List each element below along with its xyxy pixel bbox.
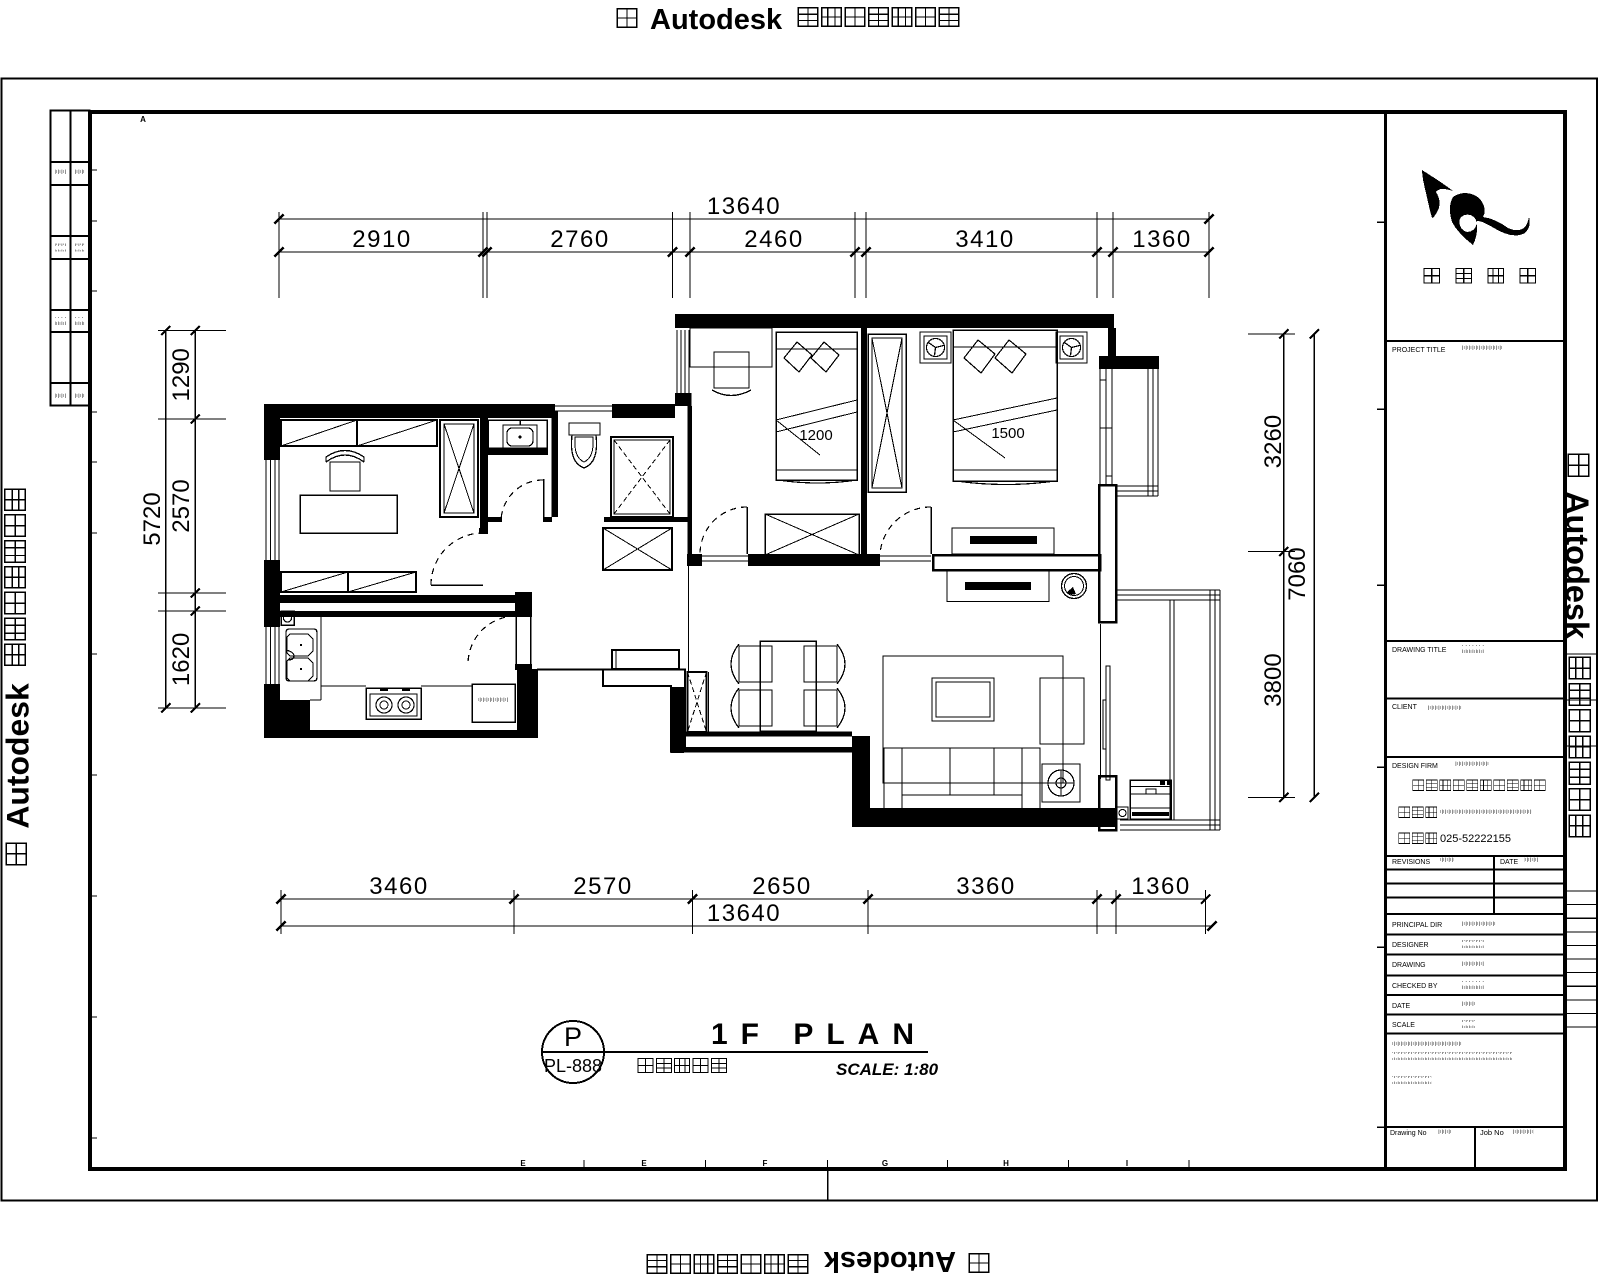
svg-text:025-52222155: 025-52222155 xyxy=(1440,833,1511,845)
svg-text:DATE: DATE xyxy=(1500,859,1518,866)
svg-text:A: A xyxy=(140,115,146,124)
svg-text:G: G xyxy=(882,1159,888,1168)
svg-text:1F PLAN: 1F PLAN xyxy=(711,1018,927,1051)
svg-text:Job No: Job No xyxy=(1480,1128,1504,1137)
svg-text:E: E xyxy=(520,1159,526,1168)
svg-text:E: E xyxy=(641,1159,647,1168)
svg-text:2570: 2570 xyxy=(168,479,195,532)
svg-text:3360: 3360 xyxy=(956,873,1015,900)
svg-text:PRINCIPAL DIR: PRINCIPAL DIR xyxy=(1392,922,1442,929)
svg-text:2760: 2760 xyxy=(550,226,609,253)
svg-text:5720: 5720 xyxy=(139,492,166,545)
svg-text:Drawing No: Drawing No xyxy=(1390,1130,1427,1137)
svg-text:CLIENT: CLIENT xyxy=(1392,704,1418,711)
svg-text:H: H xyxy=(1003,1159,1009,1168)
svg-text:1290: 1290 xyxy=(168,348,195,401)
svg-text:F: F xyxy=(763,1159,768,1168)
svg-text:7060: 7060 xyxy=(1284,547,1311,600)
svg-text:SCALE: 1:80: SCALE: 1:80 xyxy=(836,1060,939,1079)
svg-text:1500: 1500 xyxy=(991,425,1024,442)
svg-text:2910: 2910 xyxy=(352,226,411,253)
svg-text:SCALE: SCALE xyxy=(1392,1022,1415,1029)
svg-text:P: P xyxy=(564,1022,582,1052)
svg-text:2570: 2570 xyxy=(573,873,632,900)
svg-text:Autodesk: Autodesk xyxy=(650,4,783,36)
svg-text:1360: 1360 xyxy=(1132,226,1191,253)
svg-text:1200: 1200 xyxy=(799,427,832,444)
svg-text:3800: 3800 xyxy=(1260,653,1287,706)
svg-text:3260: 3260 xyxy=(1260,415,1287,468)
svg-text:Autodesk: Autodesk xyxy=(823,1245,956,1277)
svg-text:3410: 3410 xyxy=(955,226,1014,253)
svg-text:DATE: DATE xyxy=(1392,1003,1410,1010)
svg-text:13640: 13640 xyxy=(707,193,781,220)
svg-text:REVISIONS: REVISIONS xyxy=(1392,859,1430,866)
svg-text:2650: 2650 xyxy=(752,873,811,900)
svg-text:PL-888: PL-888 xyxy=(544,1056,602,1076)
svg-text:I: I xyxy=(1126,1159,1128,1168)
svg-text:3460: 3460 xyxy=(369,873,428,900)
svg-text:1360: 1360 xyxy=(1131,873,1190,900)
svg-text:DESIGNER: DESIGNER xyxy=(1392,942,1429,949)
svg-text:13640: 13640 xyxy=(707,900,781,927)
svg-text:DRAWING: DRAWING xyxy=(1392,962,1426,969)
svg-text:DESIGN FIRM: DESIGN FIRM xyxy=(1392,763,1438,770)
svg-text:1620: 1620 xyxy=(168,633,195,686)
svg-text:Autodesk: Autodesk xyxy=(0,683,35,829)
svg-text:DRAWING TITLE: DRAWING TITLE xyxy=(1392,647,1447,654)
svg-text:2460: 2460 xyxy=(744,226,803,253)
svg-text:PROJECT TITLE: PROJECT TITLE xyxy=(1392,347,1446,354)
svg-text:CHECKED BY: CHECKED BY xyxy=(1392,983,1438,990)
